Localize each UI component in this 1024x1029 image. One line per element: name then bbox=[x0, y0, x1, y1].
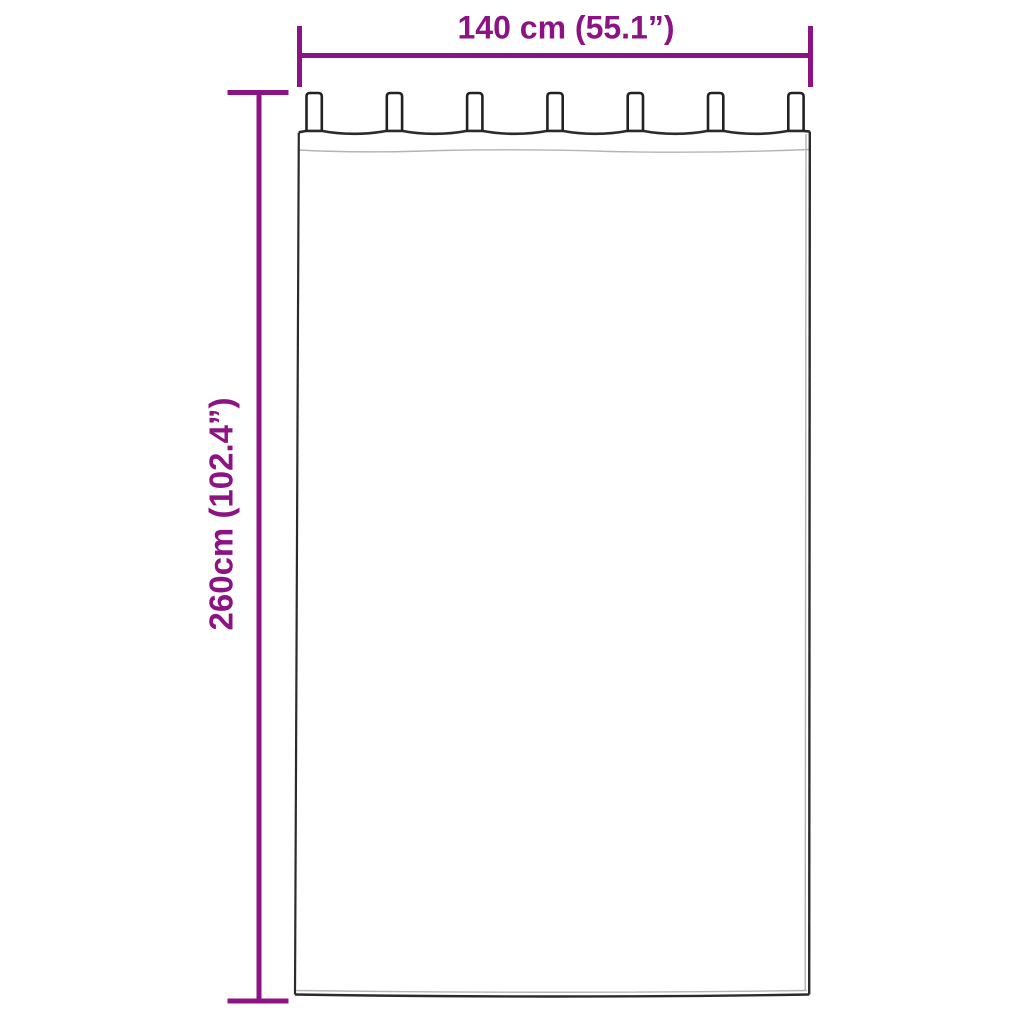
svg-text:260cm (102.4”): 260cm (102.4”) bbox=[203, 398, 240, 631]
svg-text:140 cm (55.1”): 140 cm (55.1”) bbox=[457, 10, 674, 46]
